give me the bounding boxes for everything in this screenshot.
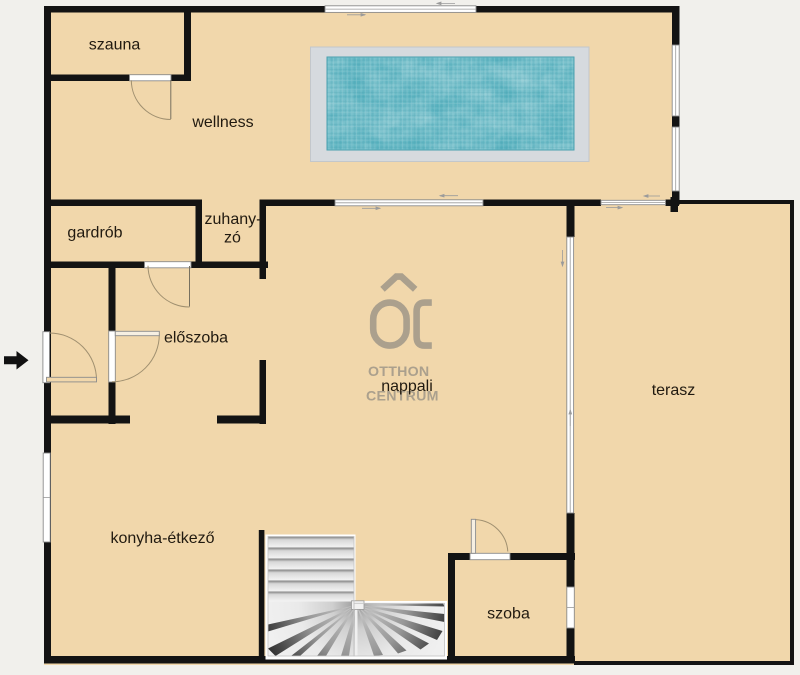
svg-text:nappali: nappali (381, 378, 433, 395)
svg-text:gardrób: gardrób (67, 225, 122, 242)
svg-text:wellness: wellness (191, 114, 253, 131)
svg-text:szoba: szoba (487, 606, 530, 623)
svg-text:terasz: terasz (652, 382, 696, 399)
svg-text:zuhany-: zuhany- (205, 211, 262, 228)
svg-text:zó: zó (224, 230, 241, 247)
svg-text:előszoba: előszoba (164, 330, 228, 347)
svg-text:szauna: szauna (89, 37, 141, 54)
svg-text:konyha-étkező: konyha-étkező (110, 530, 214, 547)
